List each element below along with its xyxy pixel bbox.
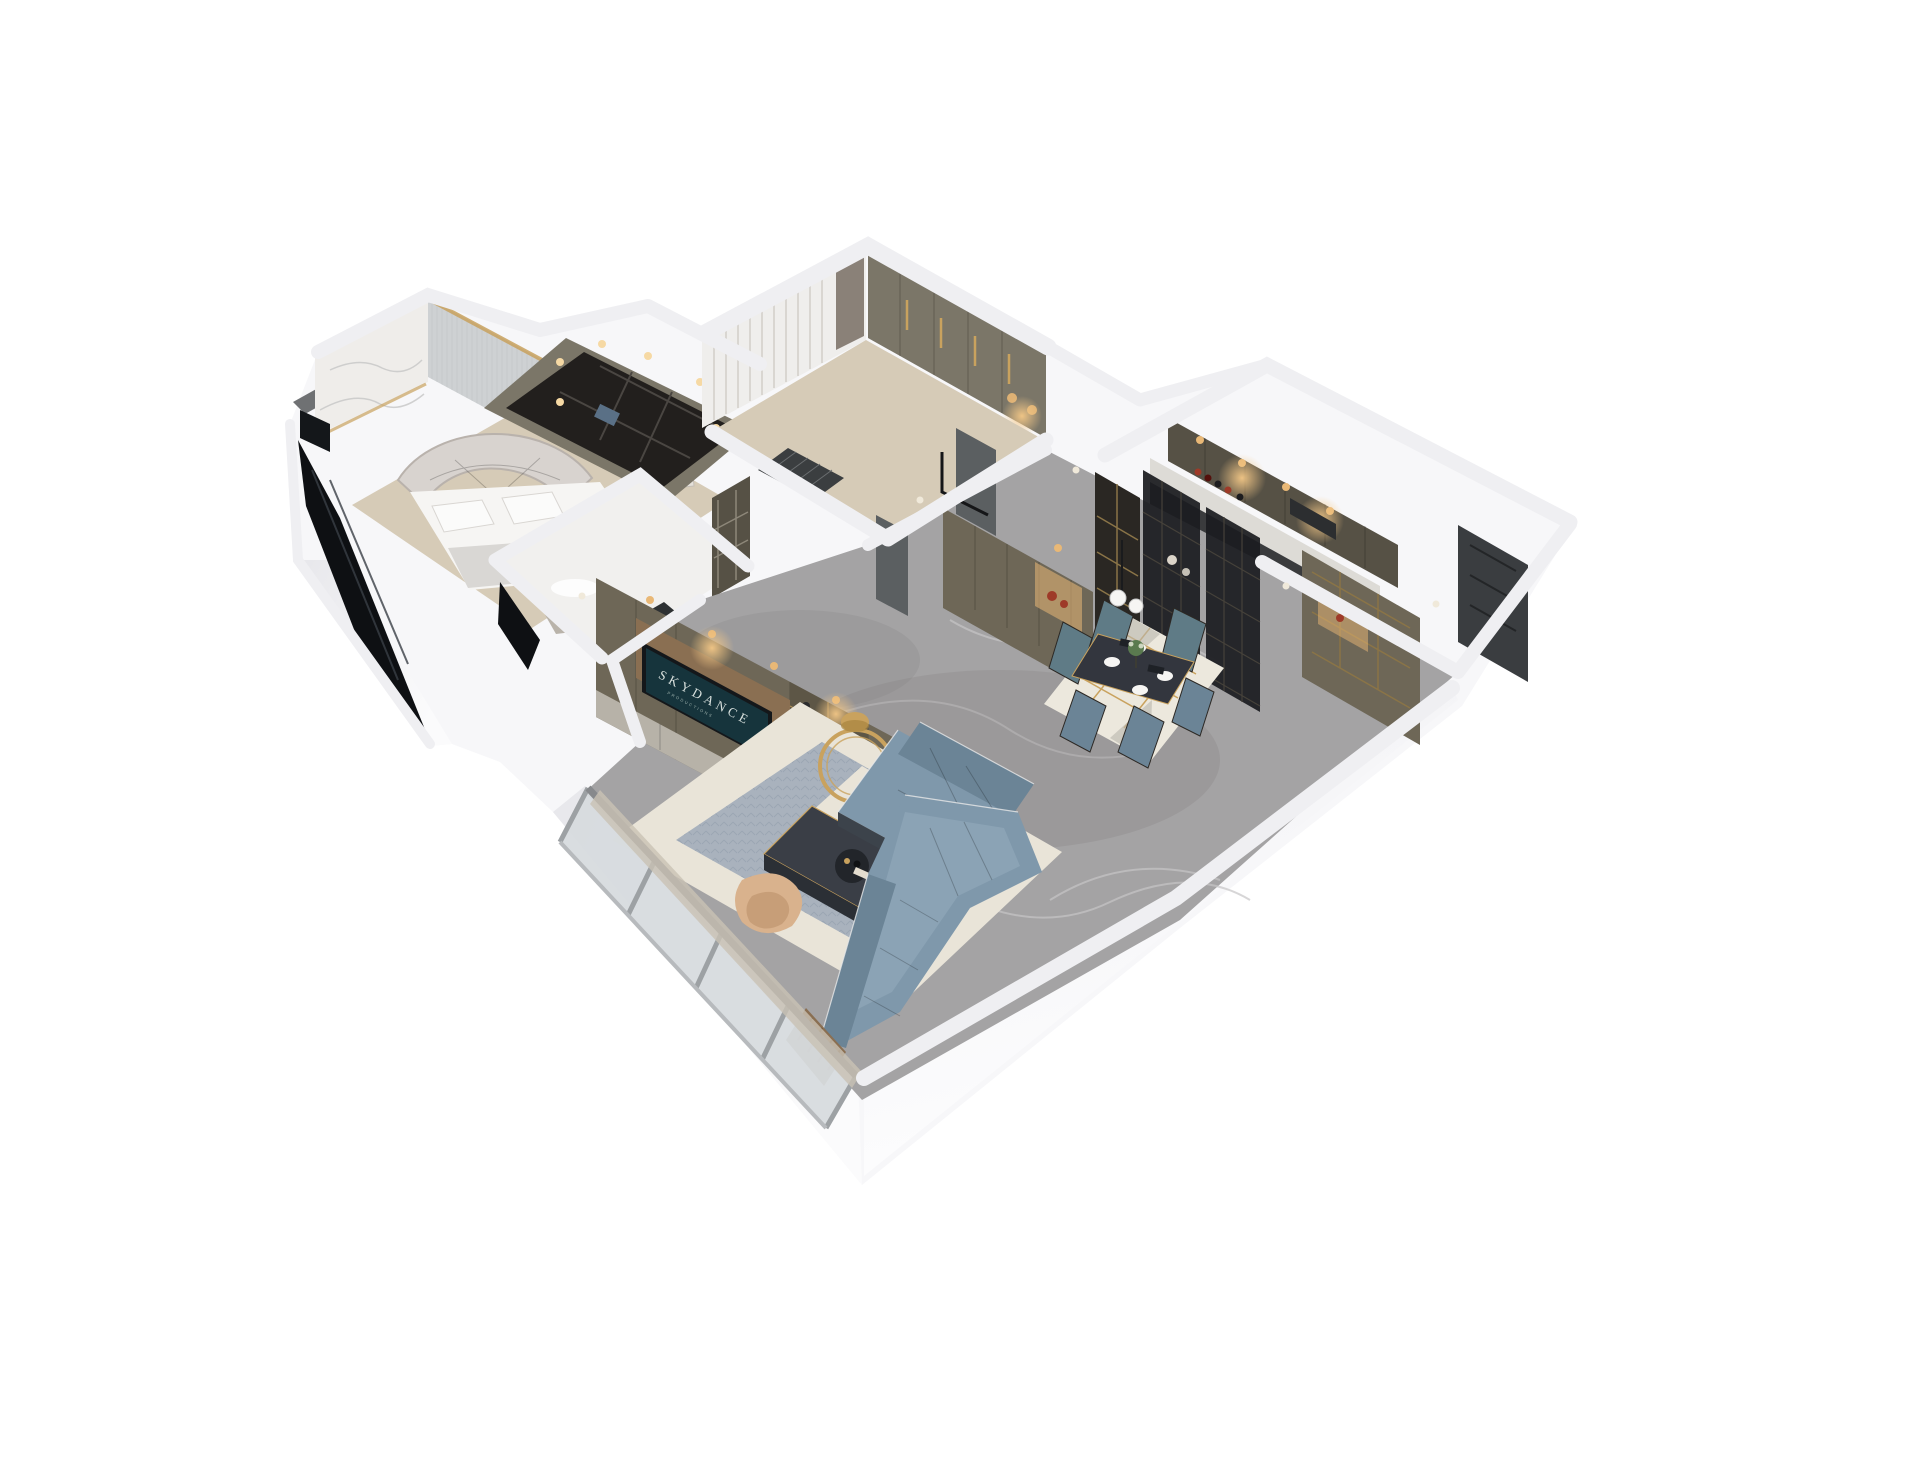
accent-chair <box>735 873 802 933</box>
tray-item <box>844 858 850 864</box>
niche-decor-red-2 <box>1060 600 1068 608</box>
glass-reflection-light-2 <box>1182 568 1190 576</box>
tray-item-2 <box>854 861 861 868</box>
niche-decor-red <box>1047 591 1057 601</box>
niche-light <box>1054 544 1062 552</box>
glass-panel-2 <box>1206 507 1260 712</box>
apartment-dollhouse-svg: SKYDANCE PRODUCTIONS <box>0 0 1920 1484</box>
floorplan-3d-render: SKYDANCE PRODUCTIONS <box>0 0 1920 1484</box>
glass-reflection-light <box>1167 555 1177 565</box>
accent-chair-seat <box>746 892 789 929</box>
light-reflection <box>551 579 599 597</box>
